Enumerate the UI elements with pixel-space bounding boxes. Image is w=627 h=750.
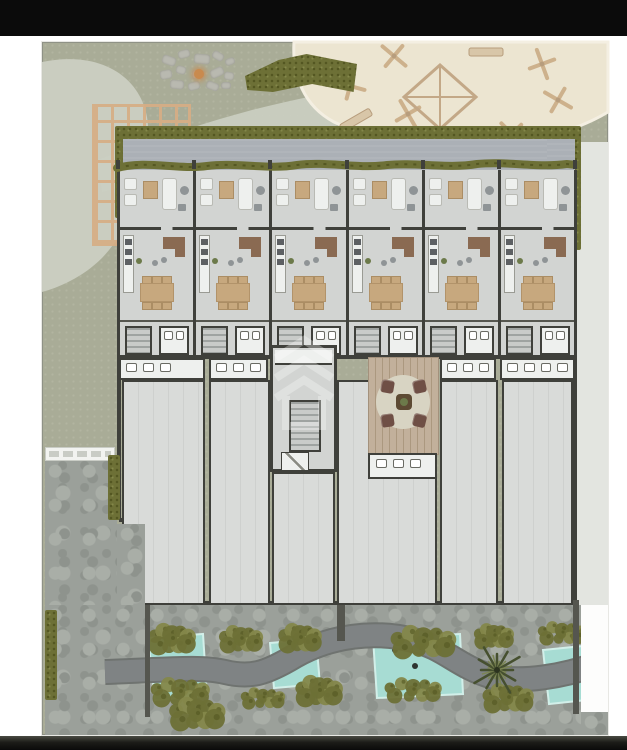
- kitchen-island-leg: [175, 237, 185, 257]
- boulder: [161, 54, 177, 67]
- pouf: [485, 186, 494, 195]
- wall-outer-right: [573, 358, 577, 606]
- toilet-icon: [447, 363, 457, 372]
- stool: [390, 257, 396, 263]
- toilet-icon: [240, 331, 249, 340]
- armchair: [124, 178, 137, 190]
- hedge-strip-walkway: [108, 455, 120, 520]
- armchair: [353, 178, 366, 190]
- armchair: [200, 178, 213, 190]
- deck-chair: [412, 413, 428, 429]
- apartment-unit: [349, 170, 425, 357]
- kitchen-counter: [504, 235, 515, 293]
- kitchen-dining-zone: [501, 230, 574, 320]
- apartment-unit: [120, 170, 196, 357]
- living-zone: [120, 170, 193, 227]
- unit-bathroom: [464, 326, 494, 355]
- stool: [161, 257, 167, 263]
- toilet-icon: [469, 331, 478, 340]
- living-zone: [425, 170, 498, 227]
- boulder: [159, 69, 172, 80]
- armchair: [505, 194, 518, 206]
- deck-bathrooms: [368, 453, 437, 479]
- sink-icon: [556, 331, 565, 340]
- kitchen-counter: [123, 235, 134, 293]
- upper-units-row: [117, 170, 577, 357]
- boulder: [209, 65, 225, 79]
- flex-room: [440, 380, 498, 605]
- terrace-post: [268, 160, 272, 169]
- unit-bathroom: [159, 326, 189, 355]
- ottoman: [254, 204, 262, 211]
- dining-chair: [294, 302, 304, 310]
- toilet-icon: [541, 363, 552, 372]
- living-zone: [349, 170, 422, 227]
- stair-bath-zone: [349, 320, 422, 359]
- dining-chair: [533, 302, 543, 310]
- dining-table: [216, 283, 250, 302]
- toilet-icon: [216, 363, 227, 372]
- deck-chair: [412, 379, 427, 394]
- sink-icon: [480, 331, 489, 340]
- dining-chair: [228, 302, 238, 310]
- stool: [542, 257, 548, 263]
- bathroom-strip: [209, 358, 268, 380]
- boulder: [223, 71, 234, 81]
- side-table: [219, 181, 234, 199]
- kite-icon: [404, 65, 476, 129]
- stair-bath-zone: [120, 320, 193, 359]
- flex-room: [502, 380, 573, 605]
- boulder: [175, 65, 187, 75]
- pinwheel-icon: [525, 45, 560, 82]
- kitchen-counter: [428, 235, 439, 293]
- dining-chair: [152, 302, 162, 310]
- bathroom-strip: [500, 358, 575, 380]
- terrace-post: [421, 160, 425, 169]
- stool: [152, 260, 158, 266]
- apartment-unit: [501, 170, 574, 357]
- boulder: [224, 57, 236, 67]
- dining-chair: [238, 302, 248, 310]
- kitchen-dining-zone: [196, 230, 269, 320]
- plant: [288, 258, 294, 264]
- screenshot-root: Rendered architectural ground-floor site…: [0, 0, 627, 750]
- side-table: [372, 181, 387, 199]
- unit-bathroom: [235, 326, 265, 355]
- courtyard-deck: [368, 357, 439, 455]
- kitchen-dining-zone: [349, 230, 422, 320]
- boulder: [205, 80, 220, 92]
- plant: [212, 258, 218, 264]
- bush-cluster: [474, 623, 514, 649]
- toilet-icon: [479, 363, 489, 372]
- developer-watermark-logo: [270, 330, 338, 434]
- pouf: [180, 186, 189, 195]
- water-garden: [145, 626, 590, 735]
- entry-walkway: [45, 447, 115, 461]
- living-zone: [196, 170, 269, 227]
- sofa: [314, 178, 329, 210]
- unit-stair: [430, 326, 457, 355]
- side-table: [143, 181, 158, 199]
- dining-chair: [142, 302, 152, 310]
- toilet-icon: [160, 363, 171, 372]
- sink-icon: [252, 331, 261, 340]
- sink-icon: [176, 331, 185, 340]
- armchair: [505, 178, 518, 190]
- toilet-icon: [545, 331, 554, 340]
- boulder: [211, 50, 225, 63]
- dining-table: [521, 283, 555, 302]
- stool: [304, 260, 310, 266]
- boulder: [221, 82, 231, 89]
- pinwheel-icon: [374, 36, 414, 75]
- pinwheel-icon: [539, 81, 578, 119]
- terrace-post: [116, 160, 120, 169]
- ottoman: [559, 204, 567, 211]
- dining-chair: [391, 302, 401, 310]
- sink-icon: [143, 363, 154, 372]
- bush-cluster: [241, 687, 286, 709]
- stool: [313, 257, 319, 263]
- bench-icon: [469, 48, 503, 56]
- side-table: [295, 181, 310, 199]
- bush-cluster: [148, 623, 196, 656]
- bathroom-strip: [440, 358, 496, 380]
- living-zone: [272, 170, 345, 227]
- dining-chair: [162, 302, 172, 310]
- pouf: [332, 186, 341, 195]
- letterbox-bottom: [0, 736, 627, 750]
- wall-east-boundary: [573, 600, 579, 714]
- toilet-icon: [507, 363, 518, 372]
- sofa: [543, 178, 558, 210]
- dining-chair: [523, 302, 533, 310]
- wall-stub-center: [337, 605, 345, 641]
- armchair: [353, 194, 366, 206]
- kitchen-island-leg: [480, 237, 490, 257]
- apartment-unit: [425, 170, 501, 357]
- pouf: [256, 186, 265, 195]
- utility-room: [281, 452, 309, 471]
- terrace-post: [497, 160, 501, 169]
- stool: [466, 257, 472, 263]
- apartment-unit: [196, 170, 272, 357]
- kitchen-island-leg: [251, 237, 261, 257]
- boulder: [187, 81, 201, 92]
- plant: [441, 258, 447, 264]
- sink-icon: [233, 363, 244, 372]
- kitchen-island-leg: [556, 237, 566, 257]
- dining-chair: [467, 302, 477, 310]
- side-table: [524, 181, 539, 199]
- kitchen-dining-zone: [425, 230, 498, 320]
- dining-chair: [543, 302, 553, 310]
- ottoman: [483, 204, 491, 211]
- stool: [381, 260, 387, 266]
- apartment-unit: [272, 170, 348, 357]
- stair-bath-zone: [425, 320, 498, 359]
- kitchen-island-leg: [404, 237, 414, 257]
- sofa: [162, 178, 177, 210]
- dining-chair: [371, 302, 381, 310]
- dining-chair: [304, 302, 314, 310]
- unit-stair: [125, 326, 152, 355]
- armchair: [124, 194, 137, 206]
- dining-table: [369, 283, 403, 302]
- side-table: [448, 181, 463, 199]
- pond-fountain: [412, 663, 418, 669]
- toilet-icon: [126, 363, 137, 372]
- terrace-post: [573, 160, 577, 169]
- sofa: [391, 178, 406, 210]
- stool: [237, 257, 243, 263]
- toilet-icon: [393, 331, 402, 340]
- kitchen-counter: [352, 235, 363, 293]
- dining-table: [292, 283, 326, 302]
- fire-ember: [194, 69, 204, 79]
- site-plan: [42, 42, 608, 735]
- sink-icon: [463, 363, 473, 372]
- sink-icon: [404, 331, 413, 340]
- kitchen-counter: [199, 235, 210, 293]
- ottoman: [330, 204, 338, 211]
- deck-chair: [380, 413, 395, 428]
- plant: [517, 258, 523, 264]
- unit-stair: [354, 326, 381, 355]
- stair-bath-zone: [501, 320, 574, 359]
- bush-cluster: [219, 625, 263, 653]
- kitchen-dining-zone: [272, 230, 345, 320]
- pouf: [409, 186, 418, 195]
- east-ground-strip: [577, 142, 608, 605]
- stool: [228, 260, 234, 266]
- dining-table: [445, 283, 479, 302]
- dining-chair: [218, 302, 228, 310]
- boulder: [170, 79, 185, 89]
- kitchen-dining-zone: [120, 230, 193, 320]
- kitchen-counter: [275, 235, 286, 293]
- wall-stub-garden-left: [145, 605, 150, 717]
- sink-icon: [393, 459, 404, 468]
- toilet-icon: [376, 459, 387, 468]
- site-boundary-cutout: [581, 605, 608, 712]
- sink-icon: [557, 363, 568, 372]
- unit-stair: [201, 326, 228, 355]
- armchair: [276, 178, 289, 190]
- flex-room: [209, 380, 270, 605]
- kitchen-island-leg: [327, 237, 337, 257]
- fire-pit: [160, 50, 240, 94]
- dining-chair: [447, 302, 457, 310]
- sofa: [467, 178, 482, 210]
- terrace-post: [345, 160, 349, 169]
- unit-bathroom: [540, 326, 570, 355]
- armchair: [429, 194, 442, 206]
- dining-chair: [314, 302, 324, 310]
- stair-bath-zone: [196, 320, 269, 359]
- boulder: [177, 49, 191, 60]
- unit-bathroom: [388, 326, 418, 355]
- boulder: [194, 53, 211, 64]
- toilet-icon: [250, 363, 261, 372]
- stool: [533, 260, 539, 266]
- living-zone: [501, 170, 574, 227]
- dining-chair: [457, 302, 467, 310]
- stool: [457, 260, 463, 266]
- dining-chair: [381, 302, 391, 310]
- toilet-icon: [410, 459, 421, 468]
- deck-chair: [380, 379, 395, 394]
- armchair: [429, 178, 442, 190]
- bathroom-strip: [119, 358, 205, 380]
- unit-stair: [506, 326, 533, 355]
- center-planter: [396, 394, 412, 410]
- terrace-post: [192, 160, 196, 169]
- sofa: [238, 178, 253, 210]
- armchair: [200, 194, 213, 206]
- bush-cluster: [278, 623, 322, 653]
- plant: [365, 258, 371, 264]
- hedge-strip-southwest: [45, 610, 57, 700]
- sink-icon: [524, 363, 535, 372]
- pouf: [561, 186, 570, 195]
- flex-room: [272, 472, 335, 605]
- armchair: [276, 194, 289, 206]
- letterbox-top: [0, 0, 627, 36]
- dining-table: [140, 283, 174, 302]
- ottoman: [407, 204, 415, 211]
- toilet-icon: [164, 331, 173, 340]
- ottoman: [178, 204, 186, 211]
- plant: [136, 258, 142, 264]
